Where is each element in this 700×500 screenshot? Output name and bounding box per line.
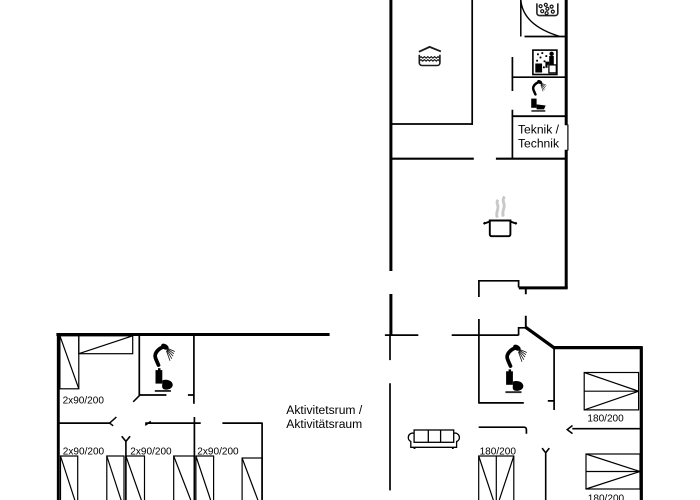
svg-text:180/200: 180/200 [587,414,624,425]
svg-text:Aktivitätsraum: Aktivitätsraum [286,417,362,431]
svg-text:2x90/200: 2x90/200 [63,395,105,406]
svg-text:Teknik /: Teknik / [518,122,560,136]
svg-text:Aktivitetsrum /: Aktivitetsrum / [286,403,363,417]
svg-text:Technik: Technik [518,137,560,151]
svg-text:180/200: 180/200 [480,447,517,458]
svg-text:180/200: 180/200 [588,494,625,500]
